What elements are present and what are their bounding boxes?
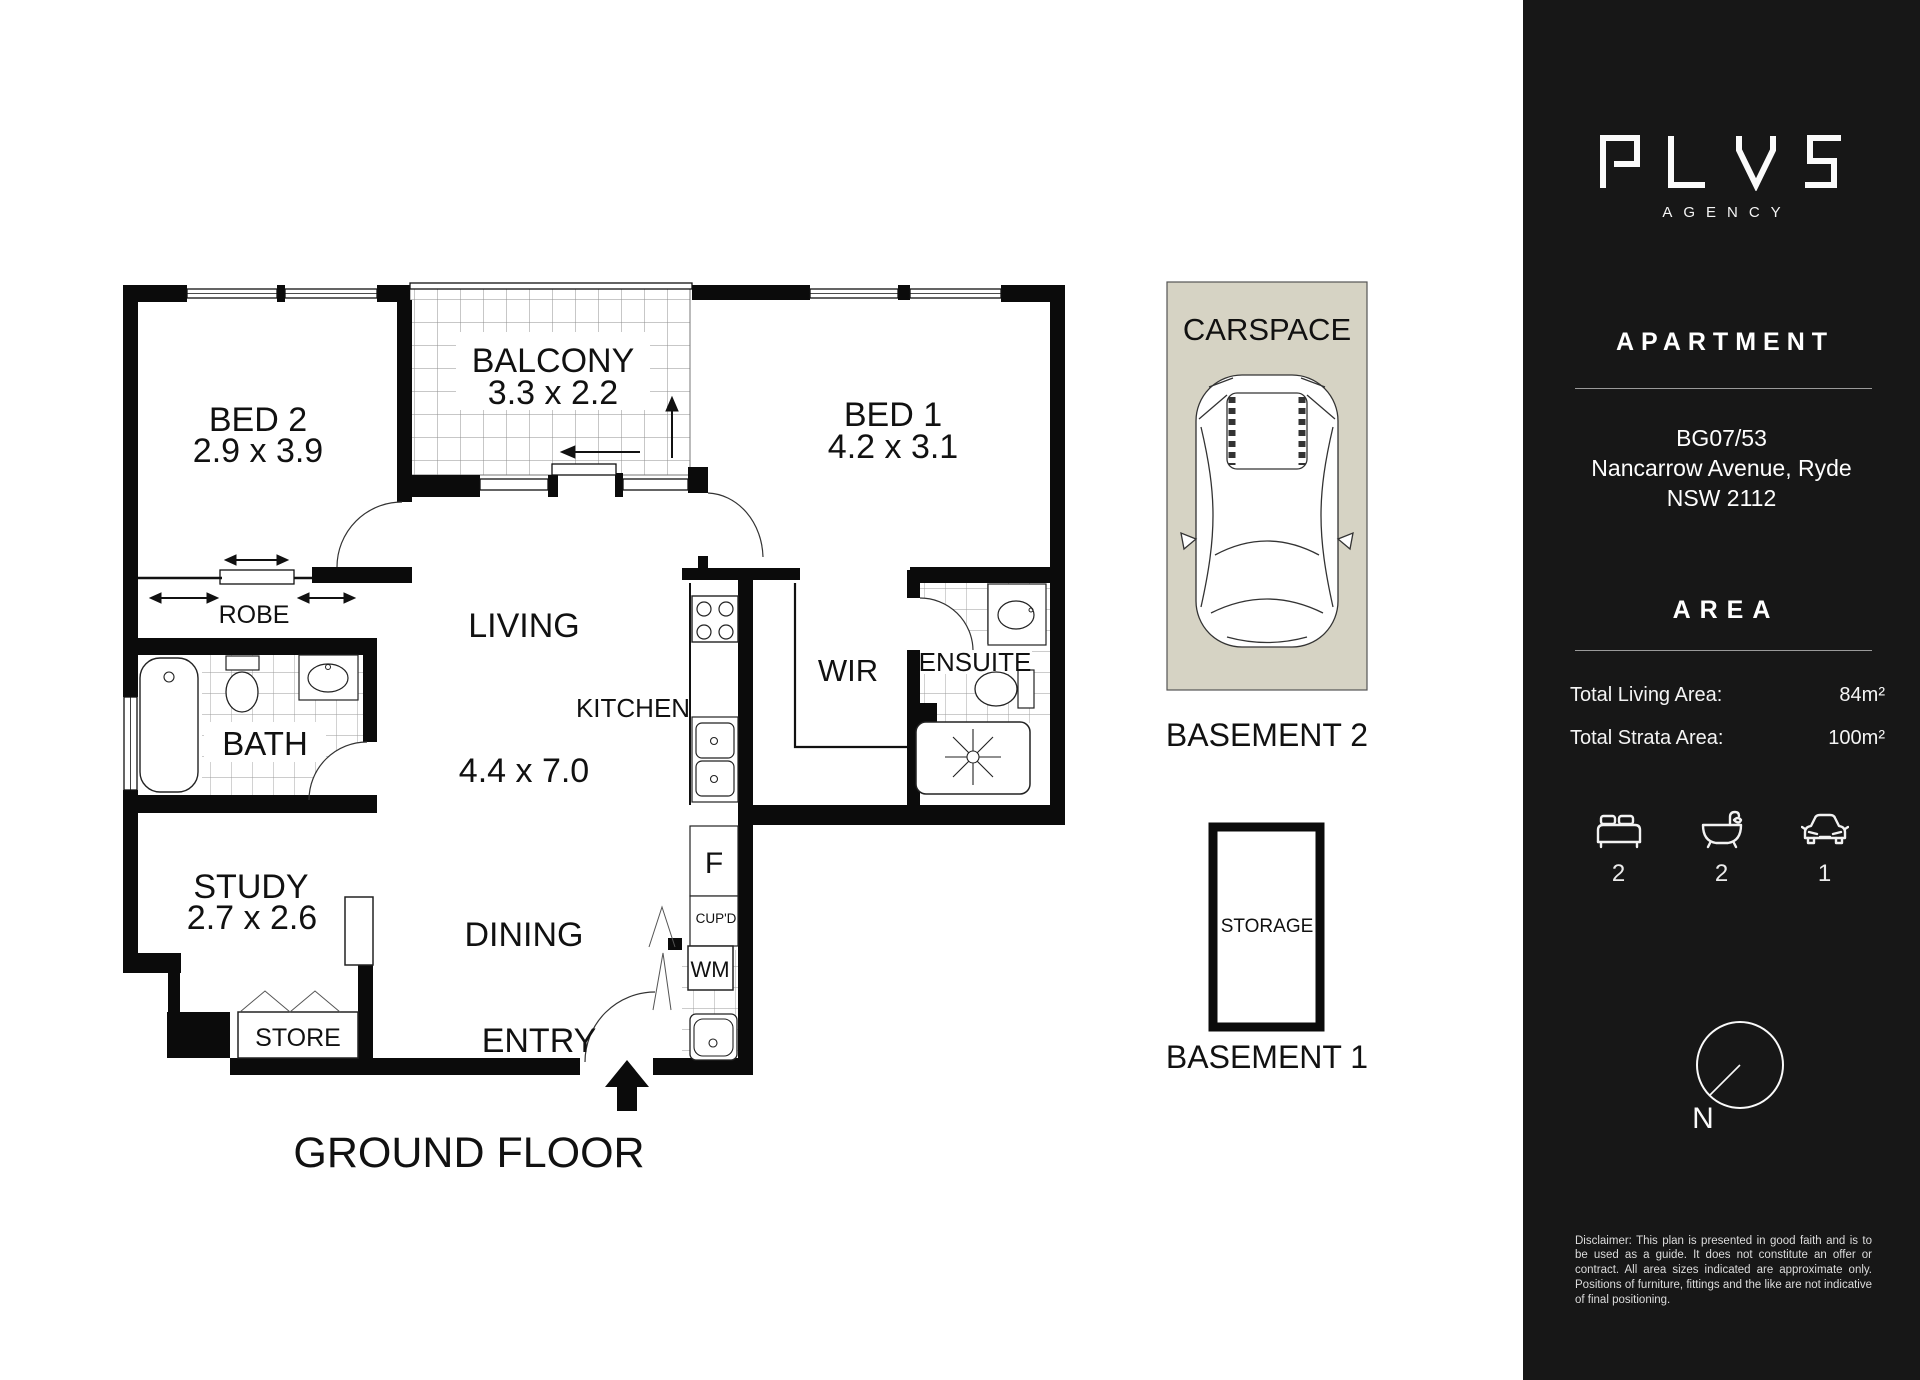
- divider: [1575, 388, 1872, 389]
- cars-stat: 1: [1773, 808, 1876, 888]
- address-line1: BG07/53: [1523, 423, 1920, 453]
- fridge-label: F: [705, 847, 723, 880]
- ensuite-toilet: [975, 672, 1017, 706]
- kitchen-fixtures: [690, 596, 738, 946]
- ensuite-vanity: [988, 584, 1046, 645]
- plan-area: BED 2 2.9 x 3.9 BALCONY 3.3 x 2.2 BED 1 …: [0, 0, 1523, 1380]
- column: [345, 897, 373, 965]
- property-type-heading: APARTMENT: [1523, 328, 1920, 357]
- bathtub: [140, 658, 198, 792]
- cooktop: [692, 596, 738, 642]
- area-table: Total Living Area: 84m² Total Strata Are…: [1570, 684, 1885, 770]
- disclaimer-text: Disclaimer: This plan is presented in go…: [1575, 1234, 1872, 1308]
- bed2-door: [337, 502, 402, 567]
- kitchen-label: KITCHEN: [576, 693, 690, 723]
- address-line3: NSW 2112: [1523, 483, 1920, 513]
- wir-label: WIR: [818, 653, 878, 688]
- bath-icon: [1698, 808, 1746, 850]
- bath-label: BATH: [222, 725, 308, 762]
- shower-drain-star: [945, 729, 1001, 785]
- compass-north-label: N: [1673, 1102, 1733, 1136]
- floor-title: GROUND FLOOR: [293, 1129, 644, 1177]
- balcony-dims: 3.3 x 2.2: [488, 374, 618, 412]
- beds-stat: 2: [1567, 808, 1670, 888]
- compass-icon: [1694, 1019, 1786, 1111]
- property-stats: 2 2: [1567, 808, 1877, 888]
- area-heading: AREA: [1523, 596, 1920, 625]
- bed1-dims: 4.2 x 3.1: [828, 428, 958, 466]
- folding-door-lines: [649, 907, 675, 1010]
- dining-label: DINING: [465, 916, 584, 954]
- storage-label: STORAGE: [1221, 916, 1314, 937]
- bath-toilet: [226, 672, 258, 712]
- robe-label: ROBE: [219, 601, 290, 629]
- basement1-caption: BASEMENT 1: [1166, 1039, 1368, 1075]
- beds-count: 2: [1567, 860, 1670, 888]
- bed-icon: [1595, 808, 1643, 850]
- strata-area-row: Total Strata Area: 100m²: [1570, 727, 1885, 750]
- divider: [1575, 650, 1872, 651]
- wm-label: WM: [690, 957, 729, 982]
- address-line2: Nancarrow Avenue, Ryde: [1523, 453, 1920, 483]
- living-label: LIVING: [468, 607, 579, 645]
- strata-area-label: Total Strata Area:: [1570, 727, 1723, 750]
- sidebar: AGENCY APARTMENT BG07/53 Nancarrow Avenu…: [1523, 0, 1920, 1380]
- store-label: STORE: [255, 1024, 341, 1052]
- car-icon: [1801, 808, 1849, 850]
- strata-area-value: 100m²: [1828, 727, 1885, 750]
- ensuite-label: ENSUITE: [919, 647, 1032, 677]
- floor-plan-drawing: BED 2 2.9 x 3.9 BALCONY 3.3 x 2.2 BED 1 …: [0, 0, 1523, 1380]
- car-top-view: [1181, 375, 1353, 647]
- living-area-row: Total Living Area: 84m²: [1570, 684, 1885, 707]
- baths-stat: 2: [1670, 808, 1773, 888]
- living-area-value: 84m²: [1839, 684, 1885, 707]
- cars-count: 1: [1773, 860, 1876, 888]
- bath-toilet-tank: [226, 656, 259, 670]
- living-dims: 4.4 x 7.0: [459, 752, 589, 790]
- kitchen-sink: [692, 717, 738, 802]
- living-area-label: Total Living Area:: [1570, 684, 1722, 707]
- baths-count: 2: [1670, 860, 1773, 888]
- floorplan-page: BED 2 2.9 x 3.9 BALCONY 3.3 x 2.2 BED 1 …: [0, 0, 1920, 1380]
- carspace-label: CARSPACE: [1183, 312, 1351, 347]
- brand-subtitle: AGENCY: [1523, 204, 1920, 221]
- store-hooks: [240, 991, 340, 1012]
- bed1-door: [708, 493, 763, 557]
- cupboard-label: CUP'D: [696, 911, 737, 926]
- entry-arrow-icon: [605, 1060, 649, 1111]
- property-address: BG07/53 Nancarrow Avenue, Ryde NSW 2112: [1523, 423, 1920, 513]
- plus-logo-icon: [1590, 133, 1854, 191]
- basement2-caption: BASEMENT 2: [1166, 717, 1368, 753]
- bed2-dims: 2.9 x 3.9: [193, 432, 323, 470]
- study-dims: 2.7 x 2.6: [187, 899, 317, 937]
- entry-label: ENTRY: [482, 1022, 597, 1060]
